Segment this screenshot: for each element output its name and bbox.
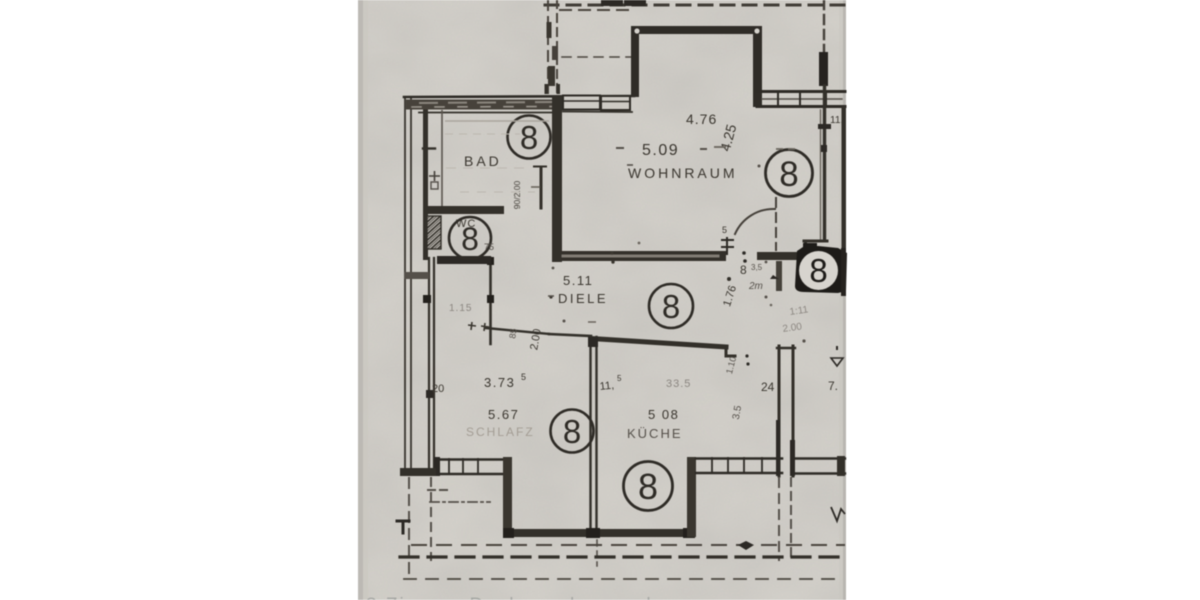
svg-text:5: 5 [521,372,526,382]
svg-text:8: 8 [779,155,798,194]
svg-text:33.5: 33.5 [666,378,691,390]
svg-text:DIELE: DIELE [558,291,608,306]
svg-text:4.76: 4.76 [686,111,717,127]
svg-text:8: 8 [563,413,581,450]
svg-text:5.67: 5.67 [488,407,519,422]
svg-text:8: 8 [461,221,479,257]
svg-text:WOHNRAUM: WOHNRAUM [628,165,738,181]
svg-text:90/2.00: 90/2.00 [512,181,522,210]
svg-text:75: 75 [484,242,494,252]
svg-text:85: 85 [507,328,519,340]
svg-text:5 08: 5 08 [648,407,679,422]
svg-text:2m: 2m [748,281,763,292]
svg-text:20: 20 [432,383,444,395]
svg-text:3,5: 3,5 [751,263,763,272]
svg-text:5.09: 5.09 [642,142,679,159]
svg-text:SCHLAFZ: SCHLAFZ [466,425,535,439]
svg-text:3.73: 3.73 [484,375,515,390]
svg-text:8: 8 [662,288,680,325]
svg-text:8: 8 [520,119,538,156]
svg-text:3 Zimmer Dachgeschosswohnung: 3 Zimmer Dachgeschosswohnung [366,595,709,600]
svg-text:8: 8 [740,263,747,277]
svg-text:24: 24 [761,380,775,394]
svg-text:5: 5 [617,374,622,383]
svg-text:1.15: 1.15 [449,303,472,314]
svg-text:8: 8 [809,252,827,289]
svg-text:BAD: BAD [464,153,502,169]
svg-text:7.: 7. [828,379,838,393]
svg-text:8: 8 [638,466,658,507]
svg-text:5.11: 5.11 [563,273,593,288]
svg-text:11,: 11, [830,115,843,126]
svg-text:5: 5 [722,225,727,235]
svg-text:11,: 11, [599,380,615,393]
svg-text:KÜCHE: KÜCHE [627,426,683,441]
